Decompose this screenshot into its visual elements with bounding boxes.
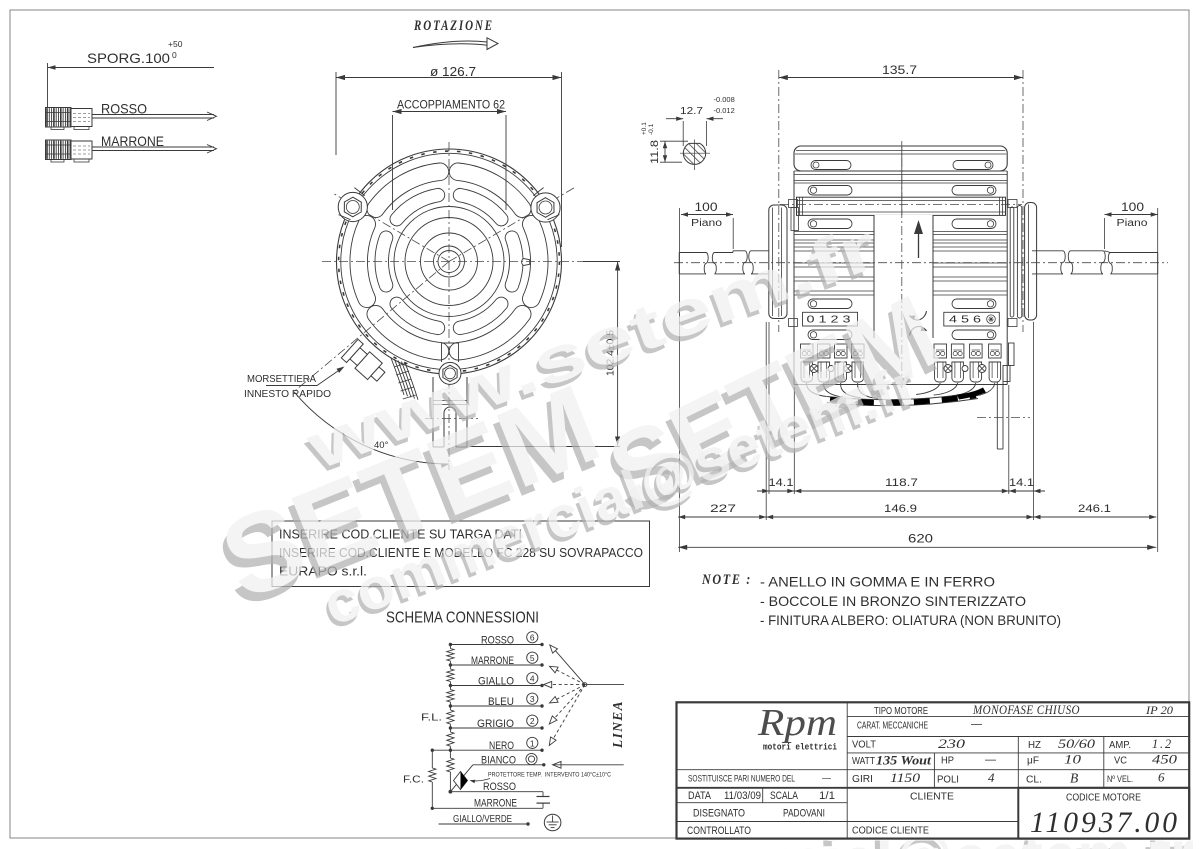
svg-text:11.8: 11.8 (649, 140, 661, 164)
svg-text:TIPO MOTORE: TIPO MOTORE (874, 705, 928, 717)
svg-text:- BOCCOLE IN BRONZO SINTERIZZA: - BOCCOLE IN BRONZO SINTERIZZATO (760, 594, 1026, 609)
svg-text:CLIENTE: CLIENTE (910, 791, 954, 803)
svg-text:-0.1: -0.1 (648, 123, 655, 135)
svg-text:100: 100 (695, 200, 718, 214)
svg-text:450: 450 (1152, 752, 1178, 767)
svg-text:6: 6 (530, 633, 535, 643)
svg-text:Rpm: Rpm (757, 702, 837, 744)
svg-text:118.7: 118.7 (885, 477, 918, 489)
svg-text:0: 0 (172, 50, 177, 60)
svg-text:-0.008: -0.008 (714, 95, 735, 104)
svg-text:CONTROLLATO: CONTROLLATO (687, 825, 751, 837)
svg-text:+0.1: +0.1 (641, 122, 648, 135)
svg-text:230: 230 (938, 736, 966, 751)
svg-text:5: 5 (530, 653, 535, 663)
svg-text:+50: +50 (168, 39, 183, 49)
svg-text:CODICE CLIENTE: CODICE CLIENTE (852, 825, 929, 837)
svg-text:GIALLO/VERDE: GIALLO/VERDE (453, 813, 512, 825)
svg-text:1: 1 (530, 738, 535, 748)
svg-text:146.9: 146.9 (884, 503, 917, 515)
svg-text:—: — (985, 754, 996, 766)
svg-text:GRIGIO: GRIGIO (477, 718, 514, 730)
svg-text:AMP.: AMP. (1109, 739, 1131, 751)
svg-text:MONOFASE CHIUSO: MONOFASE CHIUSO (972, 702, 1080, 717)
svg-text:ROSSO: ROSSO (483, 781, 516, 793)
svg-text:110937.00: 110937.00 (1030, 806, 1180, 839)
svg-text:motori elettrici: motori elettrici (763, 742, 837, 753)
svg-text:135.7: 135.7 (882, 63, 917, 77)
svg-text:1150: 1150 (890, 770, 921, 785)
svg-text:VC: VC (1114, 755, 1127, 767)
svg-text:BLEU: BLEU (488, 696, 514, 708)
svg-text:SOSTITUISCE PARI NUMERO DEL: SOSTITUISCE PARI NUMERO DEL (688, 774, 795, 784)
svg-text:2: 2 (530, 716, 535, 726)
svg-text:LINEA: LINEA (611, 700, 626, 749)
svg-text:GIALLO: GIALLO (478, 675, 514, 687)
svg-text:μF: μF (1027, 755, 1039, 767)
svg-text:12.7: 12.7 (680, 105, 703, 117)
svg-text:GIRI: GIRI (852, 773, 873, 785)
svg-text:ACCOPPIAMENTO 62: ACCOPPIAMENTO 62 (397, 98, 505, 112)
svg-text:NERO: NERO (489, 740, 514, 752)
svg-text:Piano: Piano (691, 218, 723, 229)
svg-text:MARRONE: MARRONE (474, 797, 517, 809)
svg-text:INNESTO RAPIDO: INNESTO RAPIDO (244, 388, 331, 400)
svg-text:- ANELLO IN GOMMA E IN FERRO: - ANELLO IN GOMMA E IN FERRO (760, 575, 995, 590)
svg-text:620: 620 (908, 532, 933, 546)
svg-text:100: 100 (1121, 200, 1144, 214)
svg-text:CODICE MOTORE: CODICE MOTORE (1066, 792, 1141, 804)
svg-text:ROSSO: ROSSO (481, 634, 514, 646)
svg-text:ø 126.7: ø 126.7 (430, 65, 476, 79)
svg-text:Nº VEL.: Nº VEL. (1107, 774, 1133, 785)
svg-text:—: — (971, 719, 982, 731)
svg-text:4: 4 (530, 674, 535, 684)
svg-text:NOTE :: NOTE : (701, 572, 752, 588)
svg-text:ROSSO: ROSSO (101, 101, 147, 117)
svg-text:F.L.: F.L. (421, 713, 442, 724)
svg-text:14.1: 14.1 (1009, 477, 1034, 489)
svg-text:14.1: 14.1 (769, 477, 794, 489)
svg-text:DATA: DATA (688, 790, 712, 802)
svg-text:SPORG.100: SPORG.100 (87, 50, 170, 66)
svg-text:3: 3 (530, 694, 535, 704)
svg-text:4: 4 (988, 770, 995, 785)
svg-text:246.1: 246.1 (1078, 503, 1111, 515)
svg-text:CL.: CL. (1026, 774, 1042, 786)
svg-text:POLI: POLI (937, 774, 959, 786)
svg-text:- FINITURA ALBERO: OLIATURA (N: - FINITURA ALBERO: OLIATURA (NON BRUNITO… (760, 613, 1061, 628)
svg-text:BIANCO: BIANCO (481, 755, 516, 767)
svg-text:50/60: 50/60 (1058, 736, 1096, 751)
svg-text:1.2: 1.2 (1152, 736, 1173, 751)
svg-text:B: B (1070, 771, 1078, 786)
svg-text:HZ: HZ (1028, 739, 1042, 751)
svg-text:PROTETTORE TEMP. INTERVENTO 1: PROTETTORE TEMP. INTERVENTO 140°C±10°C (488, 771, 611, 779)
svg-text:10: 10 (1064, 752, 1082, 767)
svg-text:F.C.: F.C. (403, 775, 424, 786)
svg-text:CARAT. MECCANICHE: CARAT. MECCANICHE (857, 720, 928, 732)
svg-text:Piano: Piano (1117, 218, 1149, 229)
svg-text:PADOVANI: PADOVANI (783, 808, 825, 820)
svg-text:6: 6 (1158, 770, 1165, 785)
svg-text:WATT: WATT (852, 755, 875, 767)
svg-text:ROTAZIONE: ROTAZIONE (413, 18, 494, 34)
svg-text:VOLT: VOLT (852, 739, 877, 751)
svg-text:DISEGNATO: DISEGNATO (693, 808, 745, 820)
svg-text:4 5 6: 4 5 6 (949, 314, 981, 326)
svg-text:227: 227 (710, 503, 736, 515)
svg-text:MORSETTIERA: MORSETTIERA (247, 373, 316, 385)
svg-text:—: — (822, 773, 831, 783)
svg-text:-0.012: -0.012 (714, 106, 735, 115)
svg-text:MARRONE: MARRONE (101, 133, 164, 149)
svg-text:HP: HP (941, 755, 954, 767)
svg-text:1/1: 1/1 (819, 790, 835, 802)
svg-text:11/03/09: 11/03/09 (724, 790, 761, 802)
svg-text:IP 20: IP 20 (1145, 703, 1173, 717)
svg-text:MARRONE: MARRONE (471, 655, 514, 667)
svg-text:135 Wout: 135 Wout (876, 753, 931, 768)
svg-text:SCALA: SCALA (770, 790, 799, 802)
